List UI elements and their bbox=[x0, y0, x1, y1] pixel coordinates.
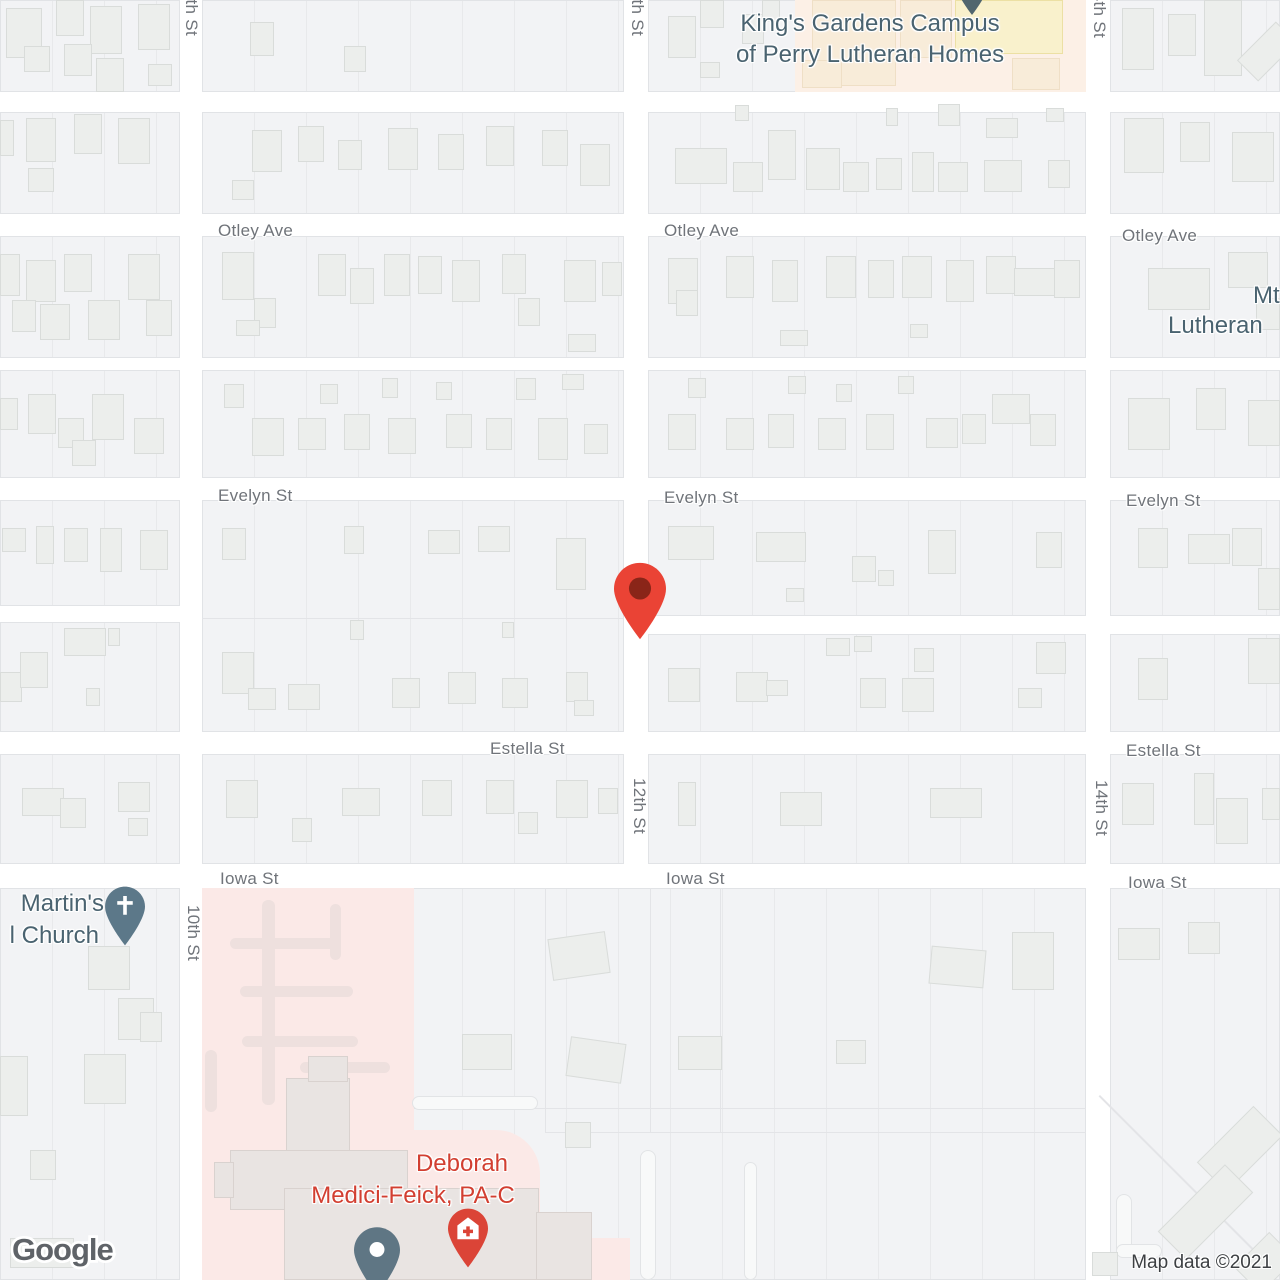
building bbox=[1018, 688, 1042, 708]
street-label-10th-st: 10th St bbox=[181, 0, 201, 36]
parcel-line bbox=[545, 1132, 1086, 1133]
street-label-10th-st: 10th St bbox=[183, 905, 203, 961]
building bbox=[556, 538, 586, 590]
building bbox=[86, 688, 100, 706]
street-label-iowa-st: Iowa St bbox=[666, 869, 725, 889]
poi-label-martins-church-line2[interactable]: l Church bbox=[0, 922, 99, 950]
city-block bbox=[648, 236, 1086, 358]
building bbox=[222, 252, 254, 300]
building bbox=[768, 414, 794, 448]
building bbox=[1122, 783, 1154, 825]
poi-label-kings-gardens-line2[interactable]: of Perry Lutheran Homes bbox=[736, 41, 1004, 69]
building bbox=[250, 22, 274, 56]
building bbox=[462, 1034, 512, 1070]
building bbox=[1128, 398, 1170, 450]
hospital-driveway bbox=[330, 904, 341, 960]
building bbox=[1148, 268, 1210, 310]
building bbox=[938, 104, 960, 126]
building bbox=[1232, 528, 1262, 566]
building bbox=[928, 946, 986, 989]
building bbox=[910, 324, 928, 338]
building bbox=[538, 418, 568, 460]
building bbox=[700, 62, 720, 78]
building bbox=[602, 262, 622, 296]
building bbox=[0, 254, 20, 296]
street-label-12th-st: 12th St bbox=[629, 778, 649, 834]
building bbox=[0, 120, 14, 156]
building bbox=[914, 648, 934, 672]
building bbox=[1124, 118, 1164, 173]
hospital-driveway bbox=[205, 1050, 217, 1112]
building bbox=[382, 378, 398, 398]
building bbox=[146, 300, 172, 336]
building bbox=[726, 418, 754, 450]
building bbox=[547, 931, 610, 981]
building bbox=[542, 130, 568, 166]
building bbox=[452, 260, 480, 302]
map-attribution: Map data ©2021 bbox=[1131, 1252, 1272, 1274]
building bbox=[562, 374, 584, 390]
building bbox=[568, 334, 596, 352]
building bbox=[72, 440, 96, 466]
building bbox=[88, 300, 120, 340]
city-block bbox=[202, 236, 624, 358]
marker-main-location-pin[interactable] bbox=[614, 560, 666, 642]
street-label-otley-ave: Otley Ave bbox=[1122, 226, 1197, 246]
building bbox=[12, 300, 36, 332]
street-label-evelyn-st: Evelyn St bbox=[1126, 491, 1201, 511]
building bbox=[926, 418, 958, 448]
marker-church-pin[interactable] bbox=[105, 886, 145, 946]
street-label-evelyn-st: Evelyn St bbox=[664, 488, 739, 508]
hospital-driveway bbox=[240, 986, 353, 997]
building bbox=[1138, 658, 1168, 700]
building bbox=[1092, 1252, 1118, 1276]
building bbox=[676, 290, 698, 316]
building bbox=[902, 256, 932, 298]
building bbox=[74, 114, 102, 154]
building bbox=[26, 118, 56, 162]
parcel-line bbox=[720, 888, 721, 1132]
building bbox=[448, 672, 476, 704]
building bbox=[298, 418, 326, 450]
building bbox=[436, 382, 452, 400]
service-road bbox=[640, 1150, 656, 1280]
building bbox=[986, 256, 1016, 294]
building bbox=[898, 376, 914, 394]
building bbox=[384, 254, 410, 296]
building bbox=[288, 684, 320, 710]
building bbox=[598, 788, 618, 814]
building bbox=[64, 44, 92, 76]
building bbox=[140, 530, 168, 570]
building bbox=[222, 528, 246, 560]
building bbox=[438, 134, 464, 170]
building bbox=[100, 528, 122, 572]
street-label-otley-ave: Otley Ave bbox=[218, 221, 293, 241]
building bbox=[338, 140, 362, 170]
building bbox=[854, 636, 872, 652]
street-label-iowa-st: Iowa St bbox=[1128, 873, 1187, 893]
building bbox=[1030, 414, 1056, 446]
building bbox=[876, 158, 902, 190]
building bbox=[60, 798, 86, 828]
street-label-12th-st: 12th St bbox=[627, 0, 647, 36]
poi-label-deborah-line2[interactable]: Medici-Feick, PA-C bbox=[311, 1182, 515, 1210]
hospital-building bbox=[308, 1056, 348, 1082]
building bbox=[902, 678, 934, 712]
building bbox=[0, 1056, 28, 1116]
building bbox=[344, 414, 370, 450]
street-label-14th-st: 14th St bbox=[1089, 0, 1109, 38]
building bbox=[788, 376, 806, 394]
building bbox=[486, 780, 514, 814]
building bbox=[1118, 928, 1160, 960]
building bbox=[930, 788, 982, 818]
building bbox=[344, 526, 364, 554]
building bbox=[56, 0, 84, 36]
building bbox=[1258, 568, 1280, 610]
building bbox=[1204, 0, 1242, 76]
building bbox=[138, 4, 170, 50]
building bbox=[726, 256, 754, 298]
building bbox=[292, 818, 312, 842]
building bbox=[1232, 132, 1274, 182]
building bbox=[938, 162, 968, 192]
building bbox=[766, 680, 788, 696]
building bbox=[700, 0, 724, 28]
building bbox=[556, 780, 588, 818]
building bbox=[418, 256, 442, 294]
building bbox=[1138, 528, 1168, 568]
building bbox=[108, 628, 120, 646]
building bbox=[826, 638, 850, 656]
building bbox=[392, 678, 420, 708]
building bbox=[134, 418, 164, 454]
building bbox=[226, 780, 258, 818]
building bbox=[826, 256, 856, 298]
poi-label-deborah-line1[interactable]: Deborah bbox=[416, 1150, 508, 1178]
building bbox=[1014, 268, 1058, 296]
building bbox=[232, 180, 254, 200]
service-road bbox=[412, 1096, 538, 1110]
street-label-evelyn-st: Evelyn St bbox=[218, 486, 293, 506]
building bbox=[252, 130, 282, 172]
hospital-driveway bbox=[230, 938, 336, 949]
building bbox=[678, 1036, 722, 1070]
building bbox=[565, 1036, 626, 1083]
building bbox=[806, 148, 840, 190]
building bbox=[252, 418, 284, 456]
building bbox=[516, 378, 536, 400]
building bbox=[248, 688, 276, 710]
building bbox=[1262, 788, 1280, 820]
building bbox=[118, 118, 150, 164]
building bbox=[678, 782, 696, 826]
building bbox=[502, 678, 528, 708]
building bbox=[780, 792, 822, 826]
building bbox=[118, 782, 150, 812]
building bbox=[1248, 638, 1280, 684]
building bbox=[733, 162, 763, 192]
building bbox=[486, 126, 514, 166]
building bbox=[1012, 58, 1060, 90]
building bbox=[574, 700, 594, 716]
building bbox=[22, 788, 64, 816]
poi-label-martins-church-line1[interactable]: Martin's bbox=[0, 890, 104, 918]
building bbox=[928, 530, 956, 574]
building bbox=[912, 152, 934, 192]
building bbox=[1054, 260, 1080, 298]
building bbox=[818, 418, 846, 450]
building bbox=[0, 672, 22, 702]
building bbox=[675, 148, 727, 184]
building bbox=[446, 414, 472, 448]
building bbox=[1036, 532, 1062, 568]
building bbox=[1036, 642, 1066, 674]
building bbox=[26, 260, 56, 302]
building bbox=[422, 780, 452, 816]
poi-label-kings-gardens-line1[interactable]: King's Gardens Campus bbox=[740, 10, 999, 38]
street-label-estella-st: Estella St bbox=[1126, 741, 1201, 761]
building bbox=[772, 260, 798, 302]
building bbox=[2, 528, 26, 552]
building bbox=[768, 130, 796, 180]
map-canvas[interactable]: Google Map data ©2021 Otley AveOtley Ave… bbox=[0, 0, 1280, 1280]
building bbox=[736, 672, 768, 702]
building bbox=[388, 128, 418, 170]
building bbox=[1180, 122, 1210, 162]
building bbox=[30, 1150, 56, 1180]
building bbox=[40, 304, 70, 340]
parcel-line bbox=[545, 888, 546, 1132]
building bbox=[64, 528, 88, 562]
building bbox=[140, 1012, 162, 1042]
building bbox=[84, 1054, 126, 1104]
hospital-building bbox=[536, 1212, 592, 1280]
building bbox=[860, 678, 886, 708]
building bbox=[1194, 773, 1214, 825]
building bbox=[350, 620, 364, 640]
service-road bbox=[744, 1162, 757, 1280]
building bbox=[428, 530, 460, 554]
building bbox=[20, 652, 48, 688]
street-label-estella-st: Estella St bbox=[490, 739, 565, 759]
building bbox=[236, 320, 260, 336]
parcel-line bbox=[650, 888, 651, 1132]
hospital-driveway bbox=[262, 900, 275, 1105]
building bbox=[688, 378, 706, 398]
building bbox=[28, 394, 56, 434]
building bbox=[852, 556, 876, 582]
building bbox=[1248, 400, 1280, 446]
building bbox=[90, 6, 122, 54]
google-logo-svg: Google bbox=[8, 1229, 140, 1271]
building bbox=[24, 46, 50, 72]
building bbox=[318, 254, 346, 296]
building bbox=[668, 668, 700, 702]
building bbox=[1048, 160, 1070, 188]
city-block bbox=[648, 754, 1086, 864]
building bbox=[565, 1122, 591, 1148]
building bbox=[128, 818, 148, 836]
building bbox=[478, 526, 510, 552]
building bbox=[320, 384, 338, 404]
building bbox=[1188, 534, 1230, 564]
street-label-iowa-st: Iowa St bbox=[220, 869, 279, 889]
hospital-driveway bbox=[242, 1036, 358, 1047]
building bbox=[92, 394, 124, 440]
building bbox=[962, 414, 986, 444]
building bbox=[986, 118, 1018, 138]
building bbox=[836, 1040, 866, 1064]
building bbox=[344, 46, 366, 72]
google-logo[interactable]: Google bbox=[8, 1229, 140, 1276]
building bbox=[28, 168, 54, 192]
building bbox=[780, 330, 808, 346]
building bbox=[668, 526, 714, 560]
building bbox=[843, 162, 869, 192]
building bbox=[946, 260, 974, 302]
building bbox=[36, 526, 54, 564]
building bbox=[64, 254, 92, 292]
building bbox=[502, 254, 526, 294]
marker-generic-poi-pin[interactable] bbox=[354, 1227, 400, 1280]
street-label-otley-ave: Otley Ave bbox=[664, 221, 739, 241]
building bbox=[786, 588, 804, 602]
building bbox=[1196, 388, 1226, 430]
building bbox=[486, 418, 512, 450]
building bbox=[96, 58, 124, 92]
building bbox=[1046, 108, 1064, 122]
building bbox=[1168, 14, 1196, 56]
street-label-14th-st: 14th St bbox=[1091, 780, 1111, 836]
poi-label-mt-lutheran-line2[interactable]: Lutheran bbox=[1168, 312, 1263, 340]
building bbox=[836, 384, 852, 402]
building bbox=[668, 414, 696, 450]
building bbox=[350, 268, 374, 304]
building bbox=[984, 160, 1022, 192]
building bbox=[735, 105, 749, 121]
building bbox=[1188, 922, 1220, 954]
building bbox=[128, 254, 160, 300]
google-logo-text: Google bbox=[12, 1232, 114, 1267]
hospital-building bbox=[214, 1162, 234, 1198]
building bbox=[566, 672, 588, 702]
building bbox=[866, 414, 894, 450]
building bbox=[878, 570, 894, 586]
building bbox=[88, 946, 130, 990]
parcel-line bbox=[202, 618, 624, 619]
poi-label-mt-lutheran-line1[interactable]: Mt bbox=[1253, 282, 1280, 310]
building bbox=[1012, 932, 1054, 990]
building bbox=[298, 126, 324, 162]
building bbox=[868, 260, 894, 298]
building bbox=[580, 144, 610, 186]
building bbox=[1122, 8, 1154, 70]
building bbox=[342, 788, 380, 816]
building bbox=[564, 260, 596, 302]
building bbox=[668, 16, 696, 58]
building bbox=[0, 398, 18, 430]
marker-medical-pin[interactable] bbox=[448, 1208, 488, 1268]
building bbox=[388, 418, 416, 454]
building bbox=[64, 628, 106, 656]
building bbox=[886, 108, 898, 126]
building bbox=[992, 394, 1030, 424]
building bbox=[518, 298, 540, 326]
building bbox=[1216, 798, 1248, 844]
building bbox=[502, 622, 514, 638]
building bbox=[584, 424, 608, 454]
building bbox=[518, 812, 538, 834]
building bbox=[224, 384, 244, 408]
building bbox=[756, 532, 806, 562]
building bbox=[148, 64, 172, 86]
